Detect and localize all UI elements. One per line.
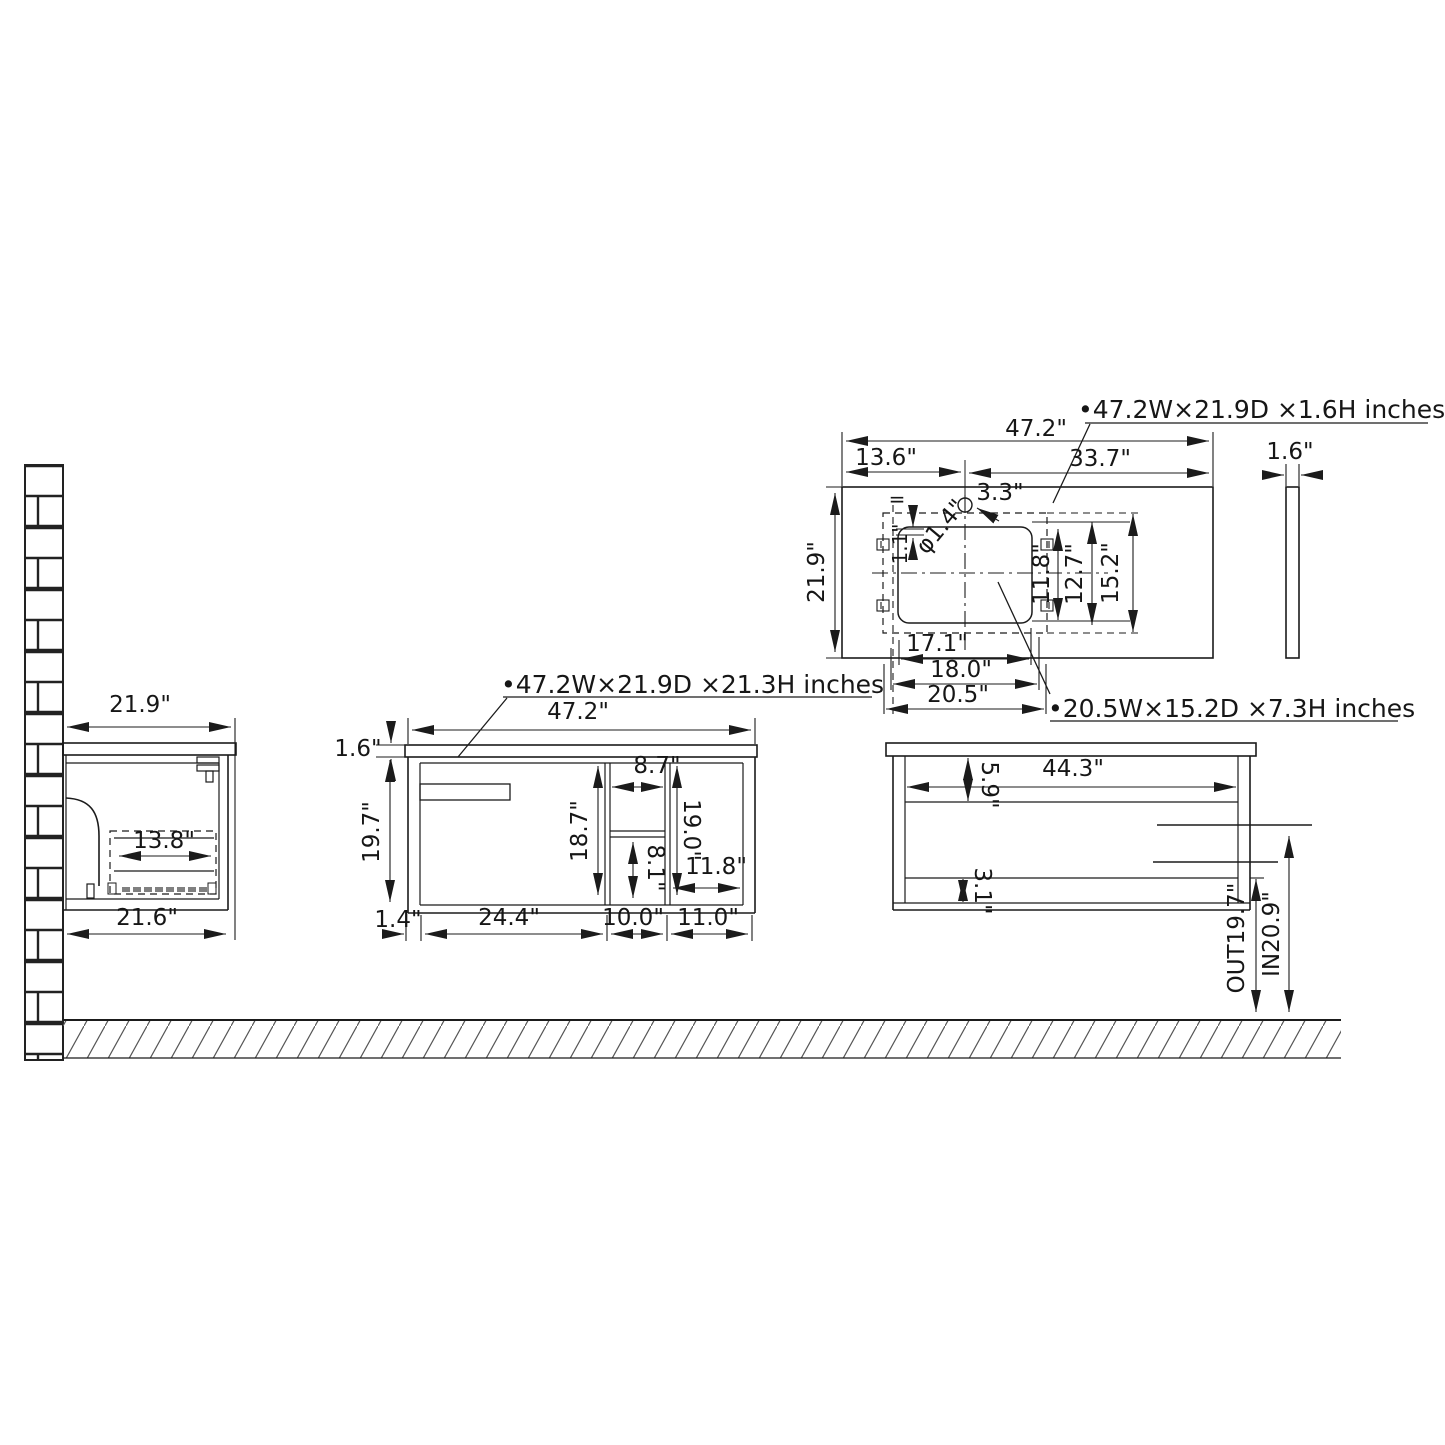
dim-top-edge-gap: 1.1" [888, 523, 912, 564]
vanity-spec-label: •47.2W×21.9D ×21.3H inches [501, 670, 884, 699]
dim-top-faucet-from-right: 33.7" [1069, 446, 1131, 472]
dim-front-counter-thickness: 1.6" [334, 736, 381, 762]
dim-front-interior-height: 18.7" [567, 800, 593, 862]
floor-section [63, 1020, 1341, 1058]
dim-back-bottom-rail: 3.1" [969, 867, 995, 914]
dim-front-shelf-section-width: 10.0" [602, 905, 664, 931]
dim-top-sink-inner-width: 17.1" [906, 631, 968, 657]
dim-front-width: 47.2" [547, 699, 609, 725]
dim-front-shelf-column-height: 19.0" [678, 799, 704, 861]
wall-section [25, 465, 63, 1060]
dim-front-panel-thickness: 1.4" [374, 907, 421, 933]
equal-spacing-mark: = [889, 487, 906, 511]
dim-front-lower-shelf-height: 8.1" [642, 844, 668, 891]
dim-front-right-opening: 11.8" [685, 854, 747, 880]
dim-top-sink-mid-width: 18.0" [930, 657, 992, 683]
dim-front-door-width: 24.4" [478, 905, 540, 931]
dim-top-sink-width: 20.5" [927, 682, 989, 708]
dim-top-counter-thickness: 1.6" [1266, 439, 1313, 465]
dim-side-depth: 21.9" [109, 692, 171, 718]
dim-front-shelf-width: 8.7" [633, 753, 680, 779]
dim-top-sink-depth: 15.2" [1098, 542, 1124, 604]
vanity-dimension-drawing: •47.2W×21.9D ×1.6H inches •47.2W×21.9D ×… [0, 0, 1445, 1445]
sink-spec-label: •20.5W×15.2D ×7.3H inches [1048, 694, 1415, 723]
dim-top-depth: 21.9" [804, 541, 830, 603]
dim-top-sink-inner-depth: 11.8" [1029, 543, 1055, 605]
dim-back-water-in-height: IN20.9" [1259, 891, 1285, 977]
dim-top-sink-mid-depth: 12.7" [1062, 543, 1088, 605]
dim-front-cabinet-height: 19.7" [359, 801, 385, 863]
dim-front-right-section-width: 11.0" [677, 905, 739, 931]
dim-back-inner-width: 44.3" [1042, 756, 1104, 782]
dim-top-faucet-from-left: 13.6" [855, 445, 917, 471]
dim-back-top-rail: 5.9" [976, 761, 1002, 808]
dim-side-drawer-depth: 13.8" [133, 828, 195, 854]
dim-top-faucet-from-back: 3.3" [976, 480, 1023, 506]
dim-back-drain-out-height: OUT19.7" [1224, 883, 1250, 994]
dim-side-bottom-depth: 21.6" [116, 905, 178, 931]
counter-spec-label: •47.2W×21.9D ×1.6H inches [1078, 395, 1445, 424]
dim-top-width: 47.2" [1005, 416, 1067, 442]
